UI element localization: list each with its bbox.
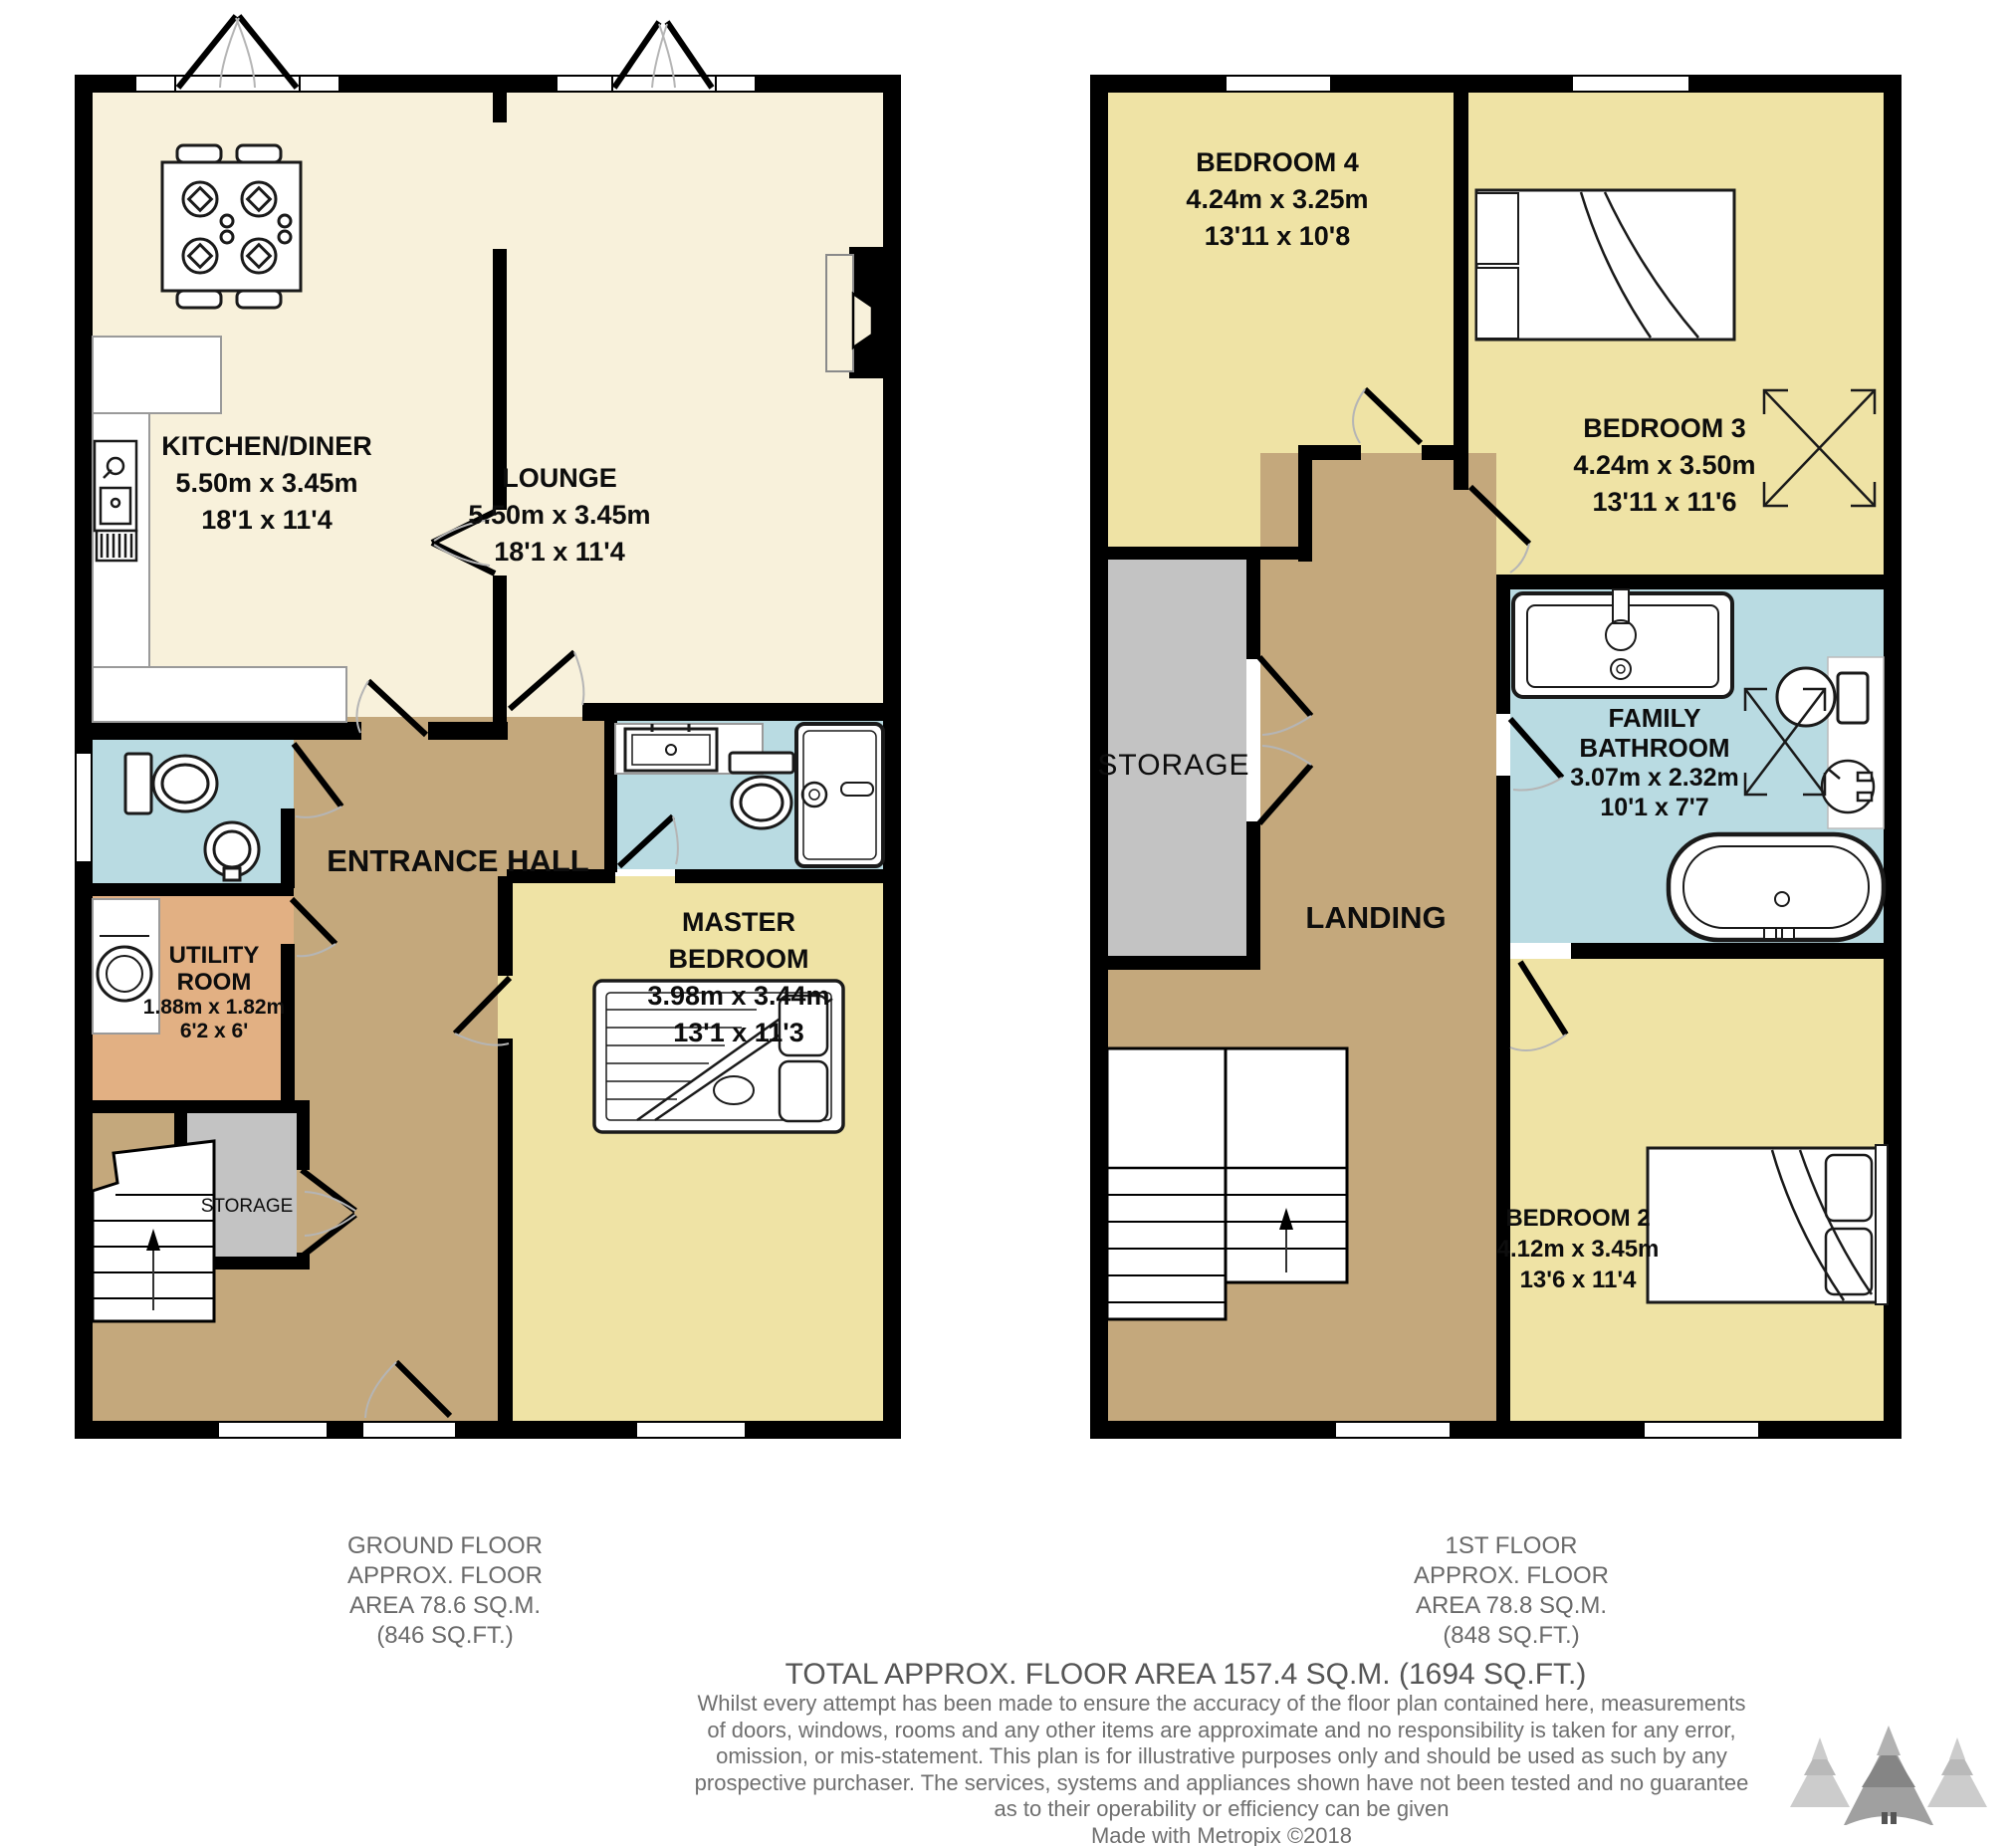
room-label-family-bathroom: FAMILY BATHROOM 3.07m x 2.32m 10'1 x 7'7 [1545, 703, 1764, 822]
room-label-master-bedroom: MASTER BEDROOM 3.98m x 3.44m 13'1 x 11'3 [619, 904, 858, 1051]
room-size-imperial: 13'1 x 11'3 [619, 1015, 858, 1051]
room-label-bedroom-2: BEDROOM 2 4.12m x 3.45m 13'6 x 11'4 [1497, 1203, 1660, 1295]
room-label-landing: LANDING [1305, 899, 1446, 936]
room-size-metric: 4.24m x 3.50m [1573, 447, 1755, 484]
caption-line: AREA 78.8 SQ.M. [1302, 1591, 1720, 1621]
room-name: STORAGE [201, 1197, 294, 1217]
first-floor-caption: 1ST FLOOR APPROX. FLOOR AREA 78.8 SQ.M. … [1302, 1531, 1720, 1651]
room-name: BEDROOM 3 [1573, 410, 1755, 447]
door-leaf [1259, 389, 1566, 1035]
room-label-kitchen-diner: KITCHEN/DINER 5.50m x 3.45m 18'1 x 11'4 [161, 428, 372, 539]
stairs-icon [93, 1141, 214, 1321]
kitchen-sink-icon [95, 441, 136, 561]
stairs-icon [1107, 1048, 1347, 1319]
toilet-icon [1777, 668, 1868, 726]
credit-line: Made with Metropix ©2018 [525, 1823, 1918, 1846]
room-name: FAMILY BATHROOM [1545, 703, 1764, 763]
toilet-icon [730, 753, 793, 828]
room-name: UTILITY ROOM [154, 942, 274, 996]
room-size-imperial: 18'1 x 11'4 [468, 534, 650, 571]
corner-basin-icon [1822, 761, 1874, 812]
wardrobe-icon [1764, 390, 1875, 506]
room-name: BEDROOM 4 [1186, 144, 1368, 181]
double-bed-icon [1648, 1145, 1888, 1304]
disclaimer-line: Whilst every attempt has been made to en… [525, 1691, 1918, 1718]
dining-table-icon [162, 145, 301, 308]
room-size-metric: 1.88m x 1.82m [143, 996, 285, 1020]
door-swing-arcs [1262, 389, 1566, 1050]
room-name: BEDROOM 2 [1497, 1203, 1660, 1234]
caption-line: APPROX. FLOOR [236, 1561, 654, 1591]
room-label-utility: UTILITY ROOM 1.88m x 1.82m 6'2 x 6' [143, 942, 285, 1043]
toilet-icon [125, 754, 217, 813]
caption-line: (846 SQ.FT.) [236, 1621, 654, 1651]
room-size-metric: 3.98m x 3.44m [619, 978, 858, 1015]
room-name: STORAGE [1097, 747, 1249, 784]
room-size-imperial: 18'1 x 11'4 [161, 502, 372, 539]
room-label-storage-first: STORAGE [1097, 747, 1249, 784]
caption-line: (848 SQ.FT.) [1302, 1621, 1720, 1651]
caption-line: GROUND FLOOR [236, 1531, 654, 1561]
bathroom-sink-icon [1513, 589, 1732, 697]
bathtub-icon [1669, 834, 1884, 940]
disclaimer-line: prospective purchaser. The services, sys… [525, 1770, 1918, 1797]
room-size-metric: 5.50m x 3.45m [468, 497, 650, 534]
disclaimer-line: omission, or mis-statement. This plan is… [525, 1743, 1918, 1770]
caption-line: APPROX. FLOOR [1302, 1561, 1720, 1591]
room-size-imperial: 10'1 x 7'7 [1545, 793, 1764, 822]
caption-line: AREA 78.6 SQ.M. [236, 1591, 654, 1621]
room-size-imperial: 6'2 x 6' [143, 1020, 285, 1043]
total-floor-area: TOTAL APPROX. FLOOR AREA 157.4 SQ.M. (16… [688, 1659, 1683, 1691]
room-size-imperial: 13'6 x 11'4 [1497, 1265, 1660, 1295]
room-size-metric: 3.07m x 2.32m [1545, 763, 1764, 793]
room-name: KITCHEN/DINER [161, 428, 372, 465]
disclaimer-line: of doors, windows, rooms and any other i… [525, 1718, 1918, 1744]
room-label-bedroom-4: BEDROOM 4 4.24m x 3.25m 13'11 x 10'8 [1186, 144, 1368, 255]
disclaimer: Whilst every attempt has been made to en… [525, 1691, 1918, 1846]
room-name: LOUNGE [468, 460, 650, 497]
room-label-bedroom-3: BEDROOM 3 4.24m x 3.50m 13'11 x 11'6 [1573, 410, 1755, 521]
room-size-metric: 4.12m x 3.45m [1497, 1234, 1660, 1265]
room-label-storage-ground: STORAGE [201, 1197, 294, 1217]
shower-icon [796, 724, 883, 866]
caption-line: 1ST FLOOR [1302, 1531, 1720, 1561]
room-size-metric: 5.50m x 3.45m [161, 465, 372, 502]
fireplace-icon [826, 255, 872, 371]
room-name: LANDING [1305, 899, 1446, 936]
basin-icon [205, 822, 259, 880]
room-name: ENTRANCE HALL [327, 842, 589, 879]
room-size-metric: 4.24m x 3.25m [1186, 181, 1368, 218]
floorplan-page: KITCHEN/DINER 5.50m x 3.45m 18'1 x 11'4 … [0, 0, 2016, 1846]
french-doors-icon [178, 16, 712, 88]
room-size-imperial: 13'11 x 10'8 [1186, 218, 1368, 255]
door-leaf [292, 512, 673, 1416]
disclaimer-line: as to their operability or efficiency ca… [525, 1796, 1918, 1823]
room-size-imperial: 13'11 x 11'6 [1573, 484, 1755, 521]
single-bed-icon [1476, 190, 1734, 340]
ground-floor-caption: GROUND FLOOR APPROX. FLOOR AREA 78.6 SQ.… [236, 1531, 654, 1651]
room-label-entrance-hall: ENTRANCE HALL [327, 842, 589, 879]
room-name: MASTER BEDROOM [619, 904, 858, 978]
room-label-lounge: LOUNGE 5.50m x 3.45m 18'1 x 11'4 [468, 460, 650, 571]
